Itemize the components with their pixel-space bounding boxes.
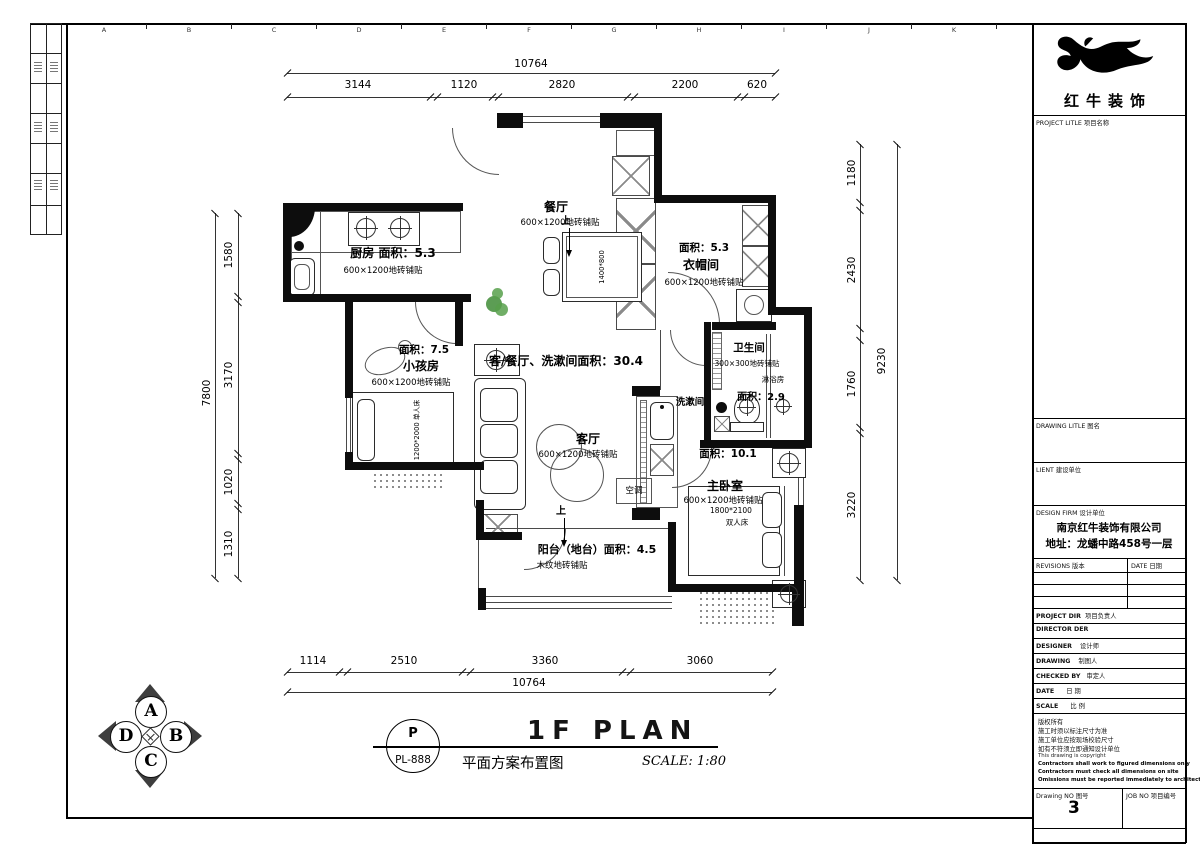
partition-line <box>660 330 661 390</box>
up-label: 上 <box>556 502 566 517</box>
room-master-finish: 600×1200地砖铺贴 <box>684 494 763 506</box>
combined-area-label: 客/餐厅、洗漱间面积：30.4 <box>489 352 643 369</box>
lamp-symbol <box>779 453 799 473</box>
dim-left-total: 7800 <box>201 380 213 407</box>
plant <box>492 288 503 299</box>
wall <box>654 113 662 203</box>
dim-right-seg: 1180 <box>846 160 858 187</box>
dim-tick <box>630 93 638 101</box>
kids-bed-label: 1200*2000 单人床 <box>411 400 421 461</box>
room-dining-title: 餐厅 <box>544 198 568 215</box>
room-balcony-title: 阳台（地台）面积：4.5 <box>538 541 657 557</box>
dim-tick <box>211 574 219 582</box>
dim-tick <box>335 668 343 676</box>
wall <box>794 505 804 592</box>
toilet-tank <box>730 422 764 432</box>
dim-tick <box>856 336 864 344</box>
tb-project-label: PROJECT LITLE 项目名称 <box>1036 118 1109 127</box>
dim-bottom-seg: 1114 <box>300 655 327 667</box>
room-kitchen-title: 厨房 面积：5.3 <box>350 244 435 261</box>
appliance <box>612 156 650 196</box>
dim-top-total: 10764 <box>514 58 547 70</box>
grid-tick <box>401 24 402 29</box>
tb-row-cn: 日 期 <box>1066 688 1081 695</box>
dim-tick <box>283 688 291 696</box>
dim-top-seg: 3144 <box>345 79 372 91</box>
tb-row-label: DIRECTOR DER <box>1036 626 1092 633</box>
tb-row-label: DATE 日 期 <box>1036 686 1081 695</box>
tb-line <box>1032 623 1186 624</box>
dim-tick <box>618 668 626 676</box>
burner <box>356 218 376 238</box>
grid-tick <box>996 24 997 29</box>
dim-line <box>238 213 239 578</box>
frame-top <box>30 23 1186 25</box>
titleblock-bottom-border <box>1032 842 1186 844</box>
wall <box>476 532 522 540</box>
wall <box>600 113 662 128</box>
kitchen-sink-basin <box>294 264 310 290</box>
wall <box>804 307 812 447</box>
pillow <box>762 532 782 568</box>
wall <box>497 113 523 128</box>
compass-letter-b: B <box>160 721 192 753</box>
drawing-number-bubble: P PL-888 <box>386 719 440 773</box>
pillow <box>357 399 375 461</box>
bath-fixture <box>714 416 730 432</box>
signature-strip-line <box>30 205 62 206</box>
dim-tick <box>283 69 291 77</box>
tb-row-cn: 制图人 <box>1078 658 1097 665</box>
sofa-cushion <box>480 460 518 494</box>
wall <box>668 522 676 592</box>
grid-tick <box>146 24 147 29</box>
room-kids-finish: 600×1200地砖铺贴 <box>372 376 451 388</box>
tb-row-cn: 审定人 <box>1086 673 1105 680</box>
tb-drawing-label: DRAWING LITLE 图名 <box>1036 421 1100 430</box>
shower-partition <box>770 334 771 438</box>
tb-row-en: DESIGNER <box>1036 643 1072 650</box>
room-dining-finish: 600×1200地砖铺贴 <box>521 216 600 228</box>
grid-letter: G <box>611 26 616 34</box>
room-cloak-area: 面积：5.3 <box>679 240 729 255</box>
dim-top-seg: 2820 <box>549 79 576 91</box>
dim-left-seg: 1580 <box>223 242 235 269</box>
tb-row-label: DRAWING 制图人 <box>1036 656 1097 665</box>
room-kitchen-finish: 600×1200地砖铺贴 <box>344 264 423 276</box>
tb-line <box>1032 596 1186 597</box>
tb-note: 版权所有 <box>1038 717 1063 726</box>
window-line <box>346 398 347 454</box>
dim-tick <box>856 576 864 584</box>
tb-note: Contractors must check all dimensions on… <box>1038 769 1178 775</box>
up-arrow-line <box>569 228 570 250</box>
grid-letter: D <box>356 26 361 34</box>
tb-row-en: SCALE <box>1036 703 1058 710</box>
room-master-bed-type: 双人床 <box>726 517 749 528</box>
wall <box>345 294 353 398</box>
dim-line <box>287 97 775 98</box>
tb-note: Contractors shall work to figured dimens… <box>1038 761 1190 767</box>
room-kids-title: 小孩房 <box>403 357 439 374</box>
dining-table-size-label: 1400*800 <box>598 250 606 284</box>
tb-line <box>1127 558 1128 608</box>
door-arc <box>452 128 499 175</box>
pillow <box>762 492 782 528</box>
tb-row-label: SCALE 比 例 <box>1036 701 1085 710</box>
dim-right-seg: 2430 <box>846 257 858 284</box>
signature-strip-line <box>30 173 62 174</box>
dim-top-seg: 620 <box>747 79 767 91</box>
grid-letter: K <box>952 26 956 34</box>
tb-row-cn: 项目负责人 <box>1085 613 1116 620</box>
dim-tick <box>771 93 779 101</box>
tb-line <box>1032 115 1186 116</box>
titleblock-right-border <box>1185 23 1187 843</box>
grid-tick <box>911 24 912 29</box>
dim-right-seg: 3220 <box>846 492 858 519</box>
dim-tick <box>893 140 901 148</box>
bubble-code: PL-888 <box>387 754 439 766</box>
grid-letter: E <box>442 26 446 34</box>
room-living-finish: 600×1200地砖铺贴 <box>539 448 618 460</box>
tb-note: 施工单位应按现场校验尺寸 <box>1038 735 1114 744</box>
signature-strip-divider <box>46 23 47 235</box>
sofa-cushion <box>480 388 518 422</box>
room-cloak-finish: 600×1200地砖铺贴 <box>665 276 744 288</box>
tb-note: 施工时须以标注尺寸为准 <box>1038 726 1107 735</box>
wall <box>283 294 471 302</box>
tb-row-en: CHECKED BY <box>1036 673 1080 680</box>
grid-letter: H <box>697 26 702 34</box>
wall <box>478 588 486 610</box>
dim-line <box>287 692 772 693</box>
tb-row-en: PROJECT DIR <box>1036 613 1081 620</box>
wall <box>345 462 484 470</box>
door-arc <box>415 302 457 344</box>
grid-letter: A <box>102 26 106 34</box>
dim-tick <box>343 668 351 676</box>
tb-line <box>1032 668 1186 669</box>
signature-strip-line <box>30 113 62 114</box>
faucet <box>660 405 664 409</box>
tb-line <box>1032 558 1186 559</box>
grid-tick <box>656 24 657 29</box>
plan-scale: SCALE: 1:80 <box>642 754 726 769</box>
wall <box>654 195 776 203</box>
burner <box>390 218 410 238</box>
tb-line <box>1032 572 1186 573</box>
shower-partition <box>766 334 767 438</box>
dim-tick <box>283 668 291 676</box>
washing-machine-drum <box>744 295 764 315</box>
wall <box>704 322 711 447</box>
wall <box>632 508 660 520</box>
tb-client-label: LIENT 建设单位 <box>1036 465 1081 474</box>
balcony-glazing <box>478 596 672 597</box>
signature-strip-line <box>30 83 62 84</box>
room-bath-shower: 淋浴房 <box>762 374 785 385</box>
tb-line <box>1032 698 1186 699</box>
window-line <box>523 116 601 117</box>
dim-tick <box>234 209 242 217</box>
tb-line <box>1032 608 1186 609</box>
dim-tick <box>626 668 634 676</box>
dim-tick <box>856 198 864 206</box>
frame-left <box>66 23 68 819</box>
chair <box>543 269 560 296</box>
ac-label: 空调 <box>625 484 642 496</box>
grid-letter: F <box>527 26 531 34</box>
tb-firm-name: 南京红牛装饰有限公司 <box>1032 520 1186 535</box>
dim-line <box>287 672 772 673</box>
rednow-bull-logo <box>1050 32 1162 88</box>
dim-left-seg: 1310 <box>223 531 235 558</box>
tb-drawingno-label: Drawing NO 图号 <box>1036 791 1088 800</box>
wall <box>712 322 776 330</box>
balcony-glazing <box>478 602 672 603</box>
compass-letter-a: A <box>135 696 167 728</box>
tb-row-label: DESIGNER 设计师 <box>1036 641 1099 650</box>
tb-line <box>1032 828 1186 829</box>
room-bath-title: 卫生间 <box>733 340 765 355</box>
dim-top-seg: 2200 <box>672 79 699 91</box>
dim-tick <box>283 93 291 101</box>
plan-title-cn: 平面方案布置图 <box>462 752 564 773</box>
door-arc <box>670 330 706 366</box>
grid-letter: C <box>272 26 277 34</box>
tb-row-cn: 设计师 <box>1080 643 1099 650</box>
window-line <box>523 122 601 123</box>
logo-name: 红牛装饰 <box>1040 90 1176 111</box>
headboard <box>784 486 785 576</box>
room-wash-title: 洗漱间 <box>676 394 705 408</box>
tb-jobno-label: JOB NO 项目编号 <box>1126 791 1176 800</box>
compass-letter-c: C <box>135 746 167 778</box>
tb-row-en: DRAWING <box>1036 658 1070 665</box>
tb-line <box>1032 638 1186 639</box>
up-arrow-line <box>564 518 565 540</box>
window-line <box>350 398 351 454</box>
compass-center-icon <box>141 727 159 745</box>
wall <box>455 294 463 346</box>
titleblock-left-border <box>1032 23 1034 843</box>
grid-tick <box>486 24 487 29</box>
dim-right-seg: 1760 <box>846 371 858 398</box>
tb-row-label: CHECKED BY 审定人 <box>1036 671 1105 680</box>
grid-tick <box>571 24 572 29</box>
tb-line <box>1032 418 1186 419</box>
tb-line <box>1122 788 1123 828</box>
tb-line <box>1032 713 1186 714</box>
lamp-symbol <box>780 585 798 603</box>
dim-tick <box>856 324 864 332</box>
room-master-title: 主卧室 <box>707 477 743 494</box>
dim-tick <box>771 69 779 77</box>
drawing-sheet: A B C D E F G H I J K 10764 3144 1120 28… <box>0 0 1200 844</box>
dim-tick <box>856 206 864 214</box>
frame-bottom <box>66 817 1032 819</box>
dim-tick <box>768 688 776 696</box>
dim-tick <box>211 209 219 217</box>
wall <box>632 386 660 396</box>
dim-line <box>215 213 216 578</box>
wash-cabinet <box>650 444 674 476</box>
tb-line <box>1032 584 1186 585</box>
tb-row-cn: 比 例 <box>1070 703 1085 710</box>
plan-title-en: 1F PLAN <box>527 716 698 746</box>
grid-letter: B <box>187 26 191 34</box>
compass-letter-d: D <box>110 721 142 753</box>
dim-right-total: 9230 <box>876 348 888 375</box>
chair <box>543 237 560 264</box>
dim-bottom-seg: 3360 <box>532 655 559 667</box>
orientation-compass: A B C D <box>98 684 202 788</box>
plant <box>495 303 508 316</box>
dim-bottom-total: 10764 <box>512 677 545 689</box>
tb-line <box>1032 788 1186 789</box>
tb-line <box>1032 683 1186 684</box>
room-bath-area: 面积：2.9 <box>737 388 785 403</box>
tb-firm-label: DESIGN FIRM 设计单位 <box>1036 508 1105 517</box>
dim-bottom-seg: 3060 <box>687 655 714 667</box>
tb-note: This drawing is copyright <box>1038 753 1106 759</box>
sofa-cushion <box>480 424 518 458</box>
tb-row-en: DATE <box>1036 688 1054 695</box>
tb-line <box>1032 462 1186 463</box>
tb-line <box>1032 653 1186 654</box>
cabinet <box>616 130 656 156</box>
tb-note: Omissions must be reported immediately t… <box>1038 777 1200 783</box>
dim-tick <box>433 93 441 101</box>
up-arrow-head <box>566 250 572 257</box>
dim-left-seg: 1020 <box>223 469 235 496</box>
dim-top-seg: 1120 <box>451 79 478 91</box>
dim-bottom-seg: 2510 <box>391 655 418 667</box>
grid-tick <box>231 24 232 29</box>
room-bath-finish: 300×300地砖铺贴 <box>715 358 780 369</box>
grid-tick <box>826 24 827 29</box>
floor-drain <box>716 402 727 413</box>
tb-revisions-date-label: DATE 日期 <box>1131 561 1162 570</box>
wall <box>768 195 776 315</box>
room-balcony-finish: 木纹地砖铺贴 <box>536 559 587 571</box>
dim-left-seg: 3170 <box>223 362 235 389</box>
tb-firm-addr: 地址：龙蟠中路458号一层 <box>1032 536 1186 551</box>
bubble-letter: P <box>387 726 439 741</box>
gas-point <box>294 241 304 251</box>
tb-drawingno-value: 3 <box>1068 798 1080 818</box>
grid-tick <box>316 24 317 29</box>
room-master-bed-size: 1800*2100 <box>710 506 752 515</box>
grid-letter: J <box>868 26 870 34</box>
dim-tick <box>856 140 864 148</box>
tb-revisions-label: REVISIONS 版本 <box>1036 561 1085 570</box>
dim-line <box>287 73 775 74</box>
room-cloak-title: 衣帽间 <box>683 256 719 273</box>
dim-tick <box>893 576 901 584</box>
dim-tick <box>768 668 776 676</box>
dim-tick <box>740 93 748 101</box>
grid-letter: I <box>783 26 785 34</box>
dim-tick <box>234 574 242 582</box>
dim-tick <box>458 668 466 676</box>
signature-strip-line <box>30 143 62 144</box>
tb-note: 如有不符须立即通知设计单位 <box>1038 744 1120 753</box>
dim-tick <box>466 668 474 676</box>
dim-line <box>897 144 898 580</box>
balcony-glazing <box>478 608 672 609</box>
rug <box>698 590 774 624</box>
room-master-area: 面积：10.1 <box>699 446 756 461</box>
tb-row-label: PROJECT DIR 项目负责人 <box>1036 611 1117 620</box>
grid-tick <box>741 24 742 29</box>
room-kids-area: 面积：7.5 <box>399 342 449 357</box>
room-living-title: 客厅 <box>576 430 600 447</box>
signature-strip-line <box>30 53 62 54</box>
dim-line <box>860 144 861 580</box>
tb-line <box>1032 505 1186 506</box>
tb-row-en: DIRECTOR DER <box>1036 626 1088 633</box>
